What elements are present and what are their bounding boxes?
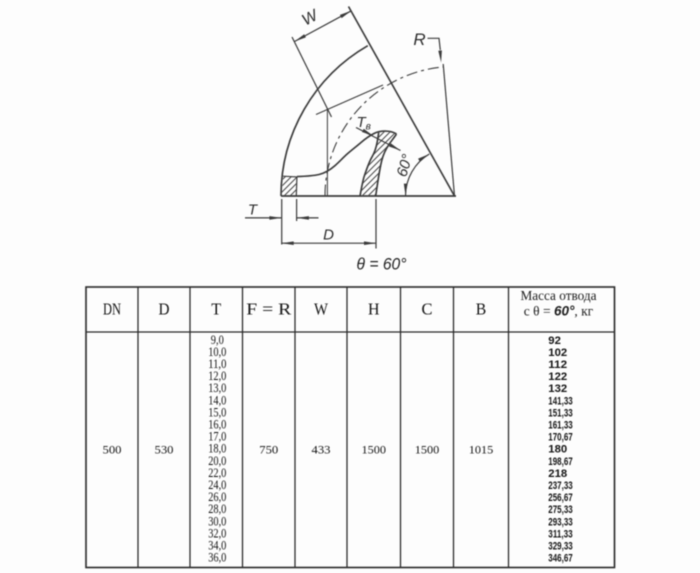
svg-text:112: 112 [548,359,567,371]
svg-text:256,67: 256,67 [548,492,572,504]
svg-text:293,33: 293,33 [548,516,572,528]
svg-text:530: 530 [155,445,174,457]
svg-text:C: C [422,300,433,319]
svg-text:500: 500 [103,445,122,457]
svg-text:W: W [314,300,329,319]
svg-text:433: 433 [312,445,331,457]
svg-text:T: T [248,202,259,219]
svg-text:92: 92 [548,335,561,347]
svg-text:141,33: 141,33 [548,395,572,407]
svg-text:1015: 1015 [469,445,494,457]
svg-text:W: W [299,6,322,29]
svg-text:122: 122 [548,371,567,383]
svg-text:DN: DN [103,300,121,319]
svg-text:с θ = 60°, кг: с θ = 60°, кг [524,304,594,319]
svg-text:750: 750 [259,445,278,457]
svg-text:F = R: F = R [246,300,292,319]
svg-text:1500: 1500 [362,445,387,457]
svg-text:D: D [323,227,334,244]
svg-text:198,67: 198,67 [548,456,572,468]
svg-text:151,33: 151,33 [548,407,572,419]
svg-text:132: 132 [548,383,567,395]
svg-text:311,33: 311,33 [548,528,572,540]
svg-text:237,33: 237,33 [548,480,572,492]
svg-text:1500: 1500 [415,445,440,457]
svg-text:275,33: 275,33 [548,504,572,516]
svg-text:102: 102 [548,347,567,359]
svg-text:B: B [476,300,487,319]
svg-text:T: T [211,300,222,319]
svg-text:170,67: 170,67 [548,432,572,444]
svg-text:180: 180 [548,444,567,456]
svg-text:D: D [159,300,170,319]
svg-text:36,0: 36,0 [208,551,226,565]
svg-text:H: H [368,300,380,319]
svg-text:Масса отвода: Масса отвода [521,288,597,303]
svg-text:θ = 60°: θ = 60° [357,255,407,274]
svg-text:R: R [413,30,425,49]
svg-text:60°: 60° [394,152,417,179]
svg-text:346,67: 346,67 [548,553,572,565]
svg-text:329,33: 329,33 [548,541,572,553]
svg-text:Tв: Tв [357,114,371,133]
svg-text:218: 218 [548,468,567,480]
svg-text:161,33: 161,33 [548,420,572,432]
